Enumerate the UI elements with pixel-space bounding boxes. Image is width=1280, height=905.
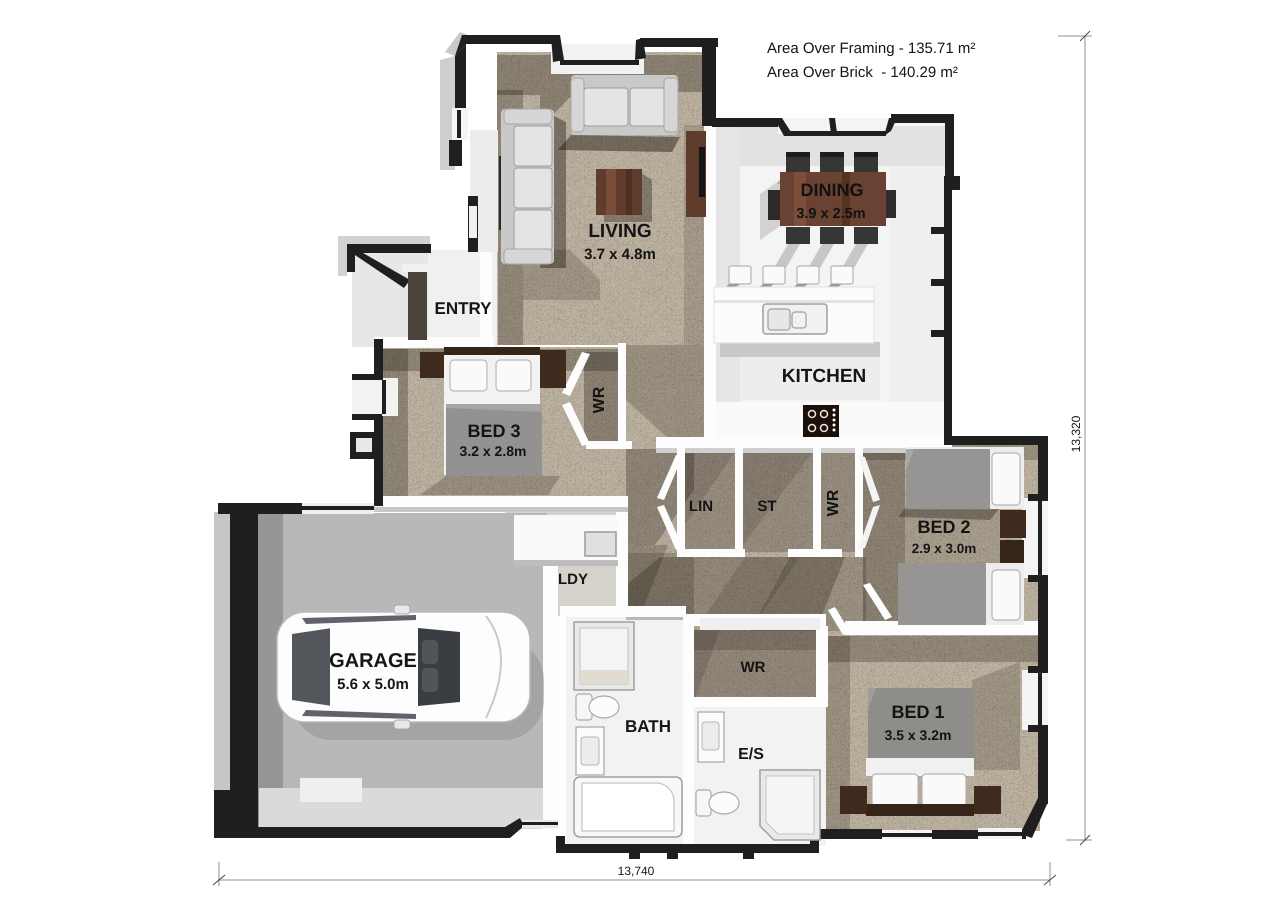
svg-text:3.2 x 2.8m: 3.2 x 2.8m (460, 443, 527, 459)
svg-text:5.6 x 5.0m: 5.6 x 5.0m (337, 676, 409, 693)
svg-text:WR: WR (825, 489, 842, 516)
svg-text:2.9 x 3.0m: 2.9 x 3.0m (912, 541, 977, 556)
svg-text:3.9 x 2.5m: 3.9 x 2.5m (796, 206, 865, 222)
svg-text:WR: WR (591, 386, 608, 413)
svg-text:WR: WR (741, 659, 766, 676)
svg-text:BED 1: BED 1 (891, 702, 944, 722)
svg-text:DINING: DINING (801, 180, 864, 200)
svg-text:3.5 x 3.2m: 3.5 x 3.2m (885, 727, 952, 743)
svg-text:LDY: LDY (558, 571, 588, 588)
svg-text:13,740: 13,740 (618, 864, 655, 878)
svg-text:ST: ST (757, 498, 776, 515)
svg-text:LIVING: LIVING (588, 221, 651, 242)
svg-text:BED 2: BED 2 (917, 517, 970, 537)
svg-text:Area Over Framing - 135.71 m²: Area Over Framing - 135.71 m² (767, 40, 975, 57)
svg-text:13,320: 13,320 (1069, 415, 1083, 452)
svg-text:ENTRY: ENTRY (435, 299, 493, 318)
svg-text:Area Over Brick - 140.29 m²: Area Over Brick - 140.29 m² (767, 64, 958, 81)
svg-text:GARAGE: GARAGE (329, 650, 417, 672)
svg-text:LIN: LIN (689, 498, 713, 515)
svg-text:3.7 x 4.8m: 3.7 x 4.8m (584, 246, 656, 263)
svg-text:E/S: E/S (738, 746, 764, 763)
svg-text:BATH: BATH (625, 717, 671, 736)
svg-text:KITCHEN: KITCHEN (782, 366, 866, 387)
svg-text:BED 3: BED 3 (467, 421, 520, 441)
